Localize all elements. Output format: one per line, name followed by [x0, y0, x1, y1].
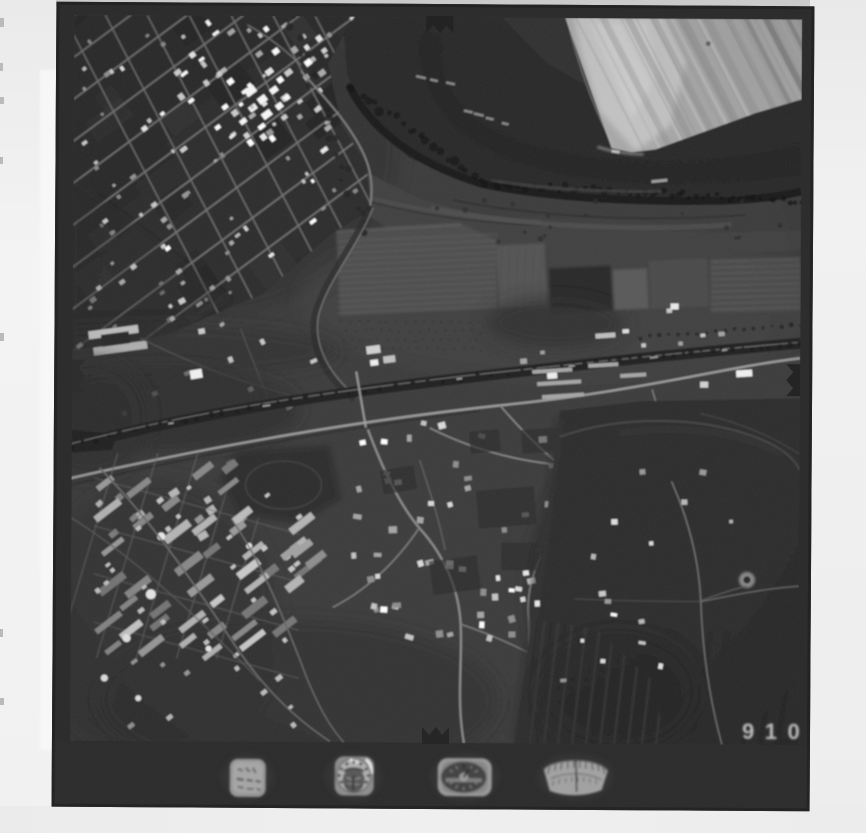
svg-text:910: 910 [742, 719, 810, 744]
